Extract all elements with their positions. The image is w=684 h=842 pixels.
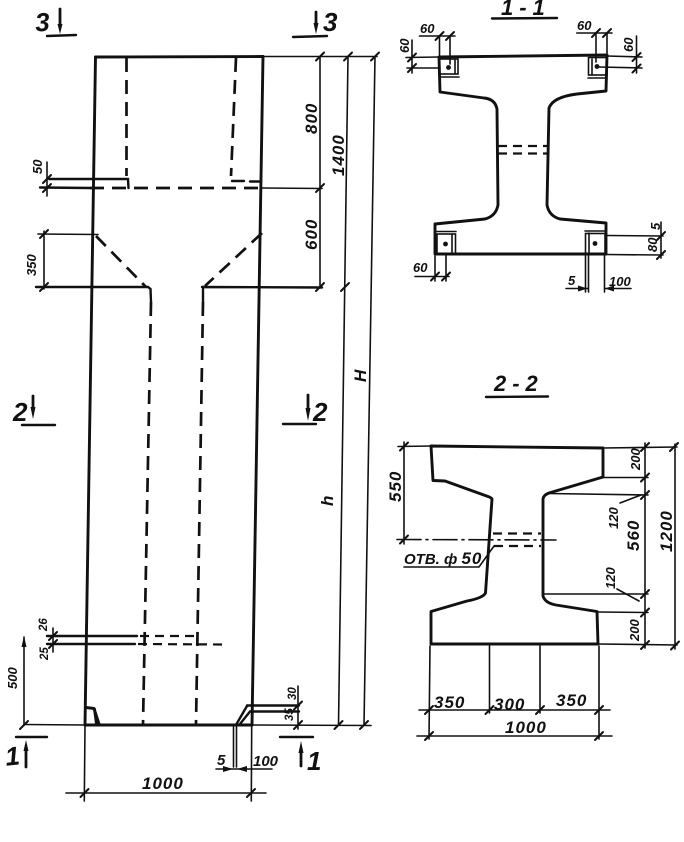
svg-text:200: 200 — [628, 448, 643, 471]
svg-text:60: 60 — [577, 18, 592, 33]
svg-text:H: H — [351, 369, 370, 382]
svg-text:5: 5 — [648, 222, 663, 230]
svg-text:5: 5 — [217, 752, 226, 769]
svg-text:200: 200 — [627, 619, 642, 642]
svg-text:60: 60 — [397, 38, 412, 53]
svg-text:3: 3 — [34, 7, 51, 38]
svg-text:3: 3 — [323, 7, 338, 37]
svg-text:120: 120 — [603, 567, 618, 589]
svg-text:100: 100 — [253, 753, 279, 770]
svg-text:60: 60 — [413, 260, 428, 275]
svg-text:300: 300 — [494, 695, 525, 714]
svg-text:1400: 1400 — [329, 134, 348, 176]
svg-text:120: 120 — [606, 507, 621, 529]
svg-text:50: 50 — [30, 159, 45, 174]
svg-text:35: 35 — [284, 708, 296, 721]
svg-text:2: 2 — [12, 397, 28, 427]
svg-text:350: 350 — [24, 254, 39, 276]
svg-text:500: 500 — [5, 667, 20, 689]
svg-text:800: 800 — [302, 103, 321, 134]
svg-text:600: 600 — [302, 219, 321, 250]
svg-text:560: 560 — [624, 520, 643, 551]
svg-text:26: 26 — [38, 618, 50, 632]
svg-text:350: 350 — [556, 691, 587, 710]
svg-text:60: 60 — [621, 37, 636, 52]
svg-text:2: 2 — [312, 397, 328, 427]
svg-text:60: 60 — [420, 21, 435, 36]
svg-text:ОТВ. ф 50: ОТВ. ф 50 — [404, 549, 482, 568]
svg-text:550: 550 — [386, 471, 405, 502]
svg-text:100: 100 — [609, 274, 631, 289]
svg-text:5: 5 — [568, 273, 576, 288]
svg-text:1000: 1000 — [142, 774, 184, 793]
svg-text:1000: 1000 — [505, 718, 547, 737]
svg-text:1: 1 — [307, 746, 321, 776]
svg-text:1200: 1200 — [657, 510, 676, 552]
svg-text:2-2: 2-2 — [493, 371, 544, 396]
svg-text:h: h — [318, 495, 337, 506]
svg-text:25: 25 — [39, 647, 51, 661]
svg-text:80: 80 — [645, 237, 660, 252]
svg-text:30: 30 — [287, 687, 299, 700]
svg-text:350: 350 — [434, 693, 465, 712]
